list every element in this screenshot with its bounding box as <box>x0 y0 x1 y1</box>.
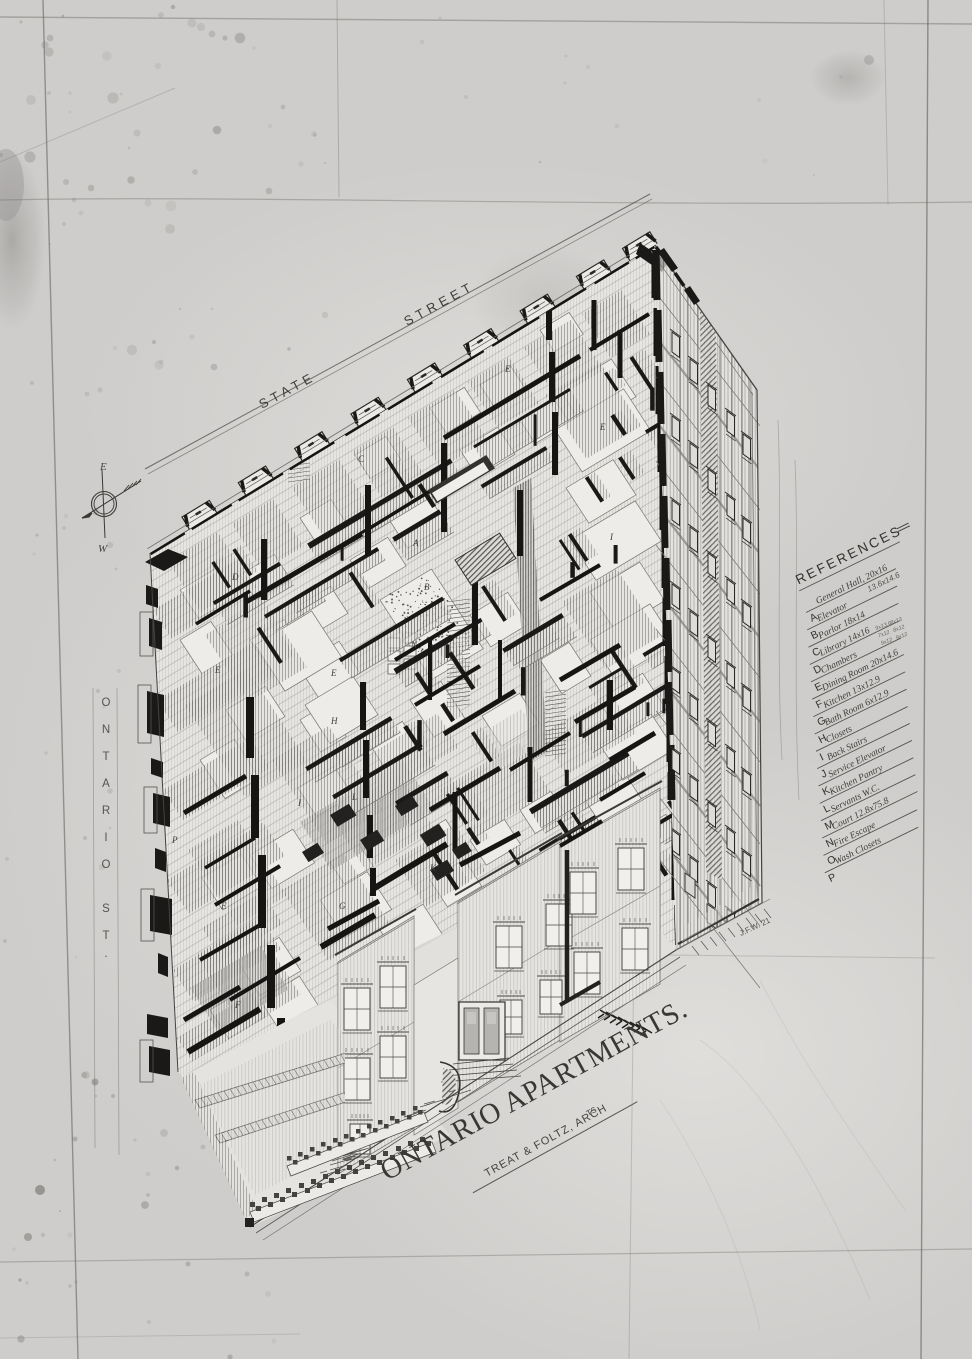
svg-text:E: E <box>220 901 227 911</box>
svg-text:N: N <box>102 724 110 736</box>
svg-text:C: C <box>358 454 365 464</box>
svg-text:L: L <box>351 792 357 802</box>
svg-text:A: A <box>102 778 110 790</box>
svg-text:H: H <box>330 716 338 726</box>
svg-text:D: D <box>231 572 239 582</box>
svg-text:P: P <box>171 835 178 845</box>
svg-text:I: I <box>104 832 107 844</box>
svg-text:E: E <box>599 422 606 432</box>
svg-text:A: A <box>412 538 419 548</box>
svg-text:E: E <box>214 665 221 675</box>
svg-text:K: K <box>429 863 437 873</box>
svg-text:W: W <box>98 543 108 555</box>
svg-text:E: E <box>504 364 511 374</box>
svg-text:E: E <box>330 668 337 678</box>
svg-text:O: O <box>102 859 111 871</box>
svg-text:B: B <box>424 582 430 592</box>
svg-text:.: . <box>104 948 107 960</box>
svg-text:F: F <box>234 1000 241 1010</box>
svg-text:S: S <box>102 903 110 915</box>
svg-text:T: T <box>102 751 109 763</box>
svg-text:O: O <box>102 697 111 709</box>
svg-text:R: R <box>102 805 110 817</box>
svg-text:N: N <box>410 640 418 650</box>
svg-text:G: G <box>339 901 346 911</box>
svg-text:T: T <box>102 930 109 942</box>
svg-text:E: E <box>99 461 107 473</box>
